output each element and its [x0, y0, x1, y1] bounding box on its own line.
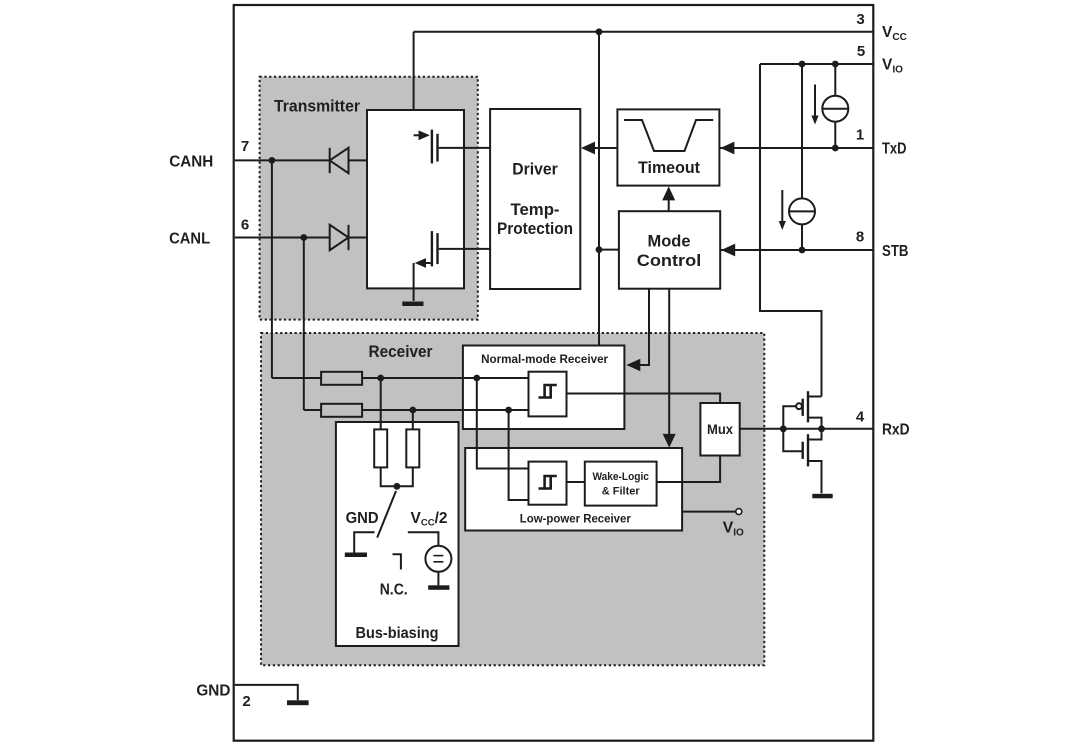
svg-text:N.C.: N.C.: [380, 582, 408, 599]
svg-text:5: 5: [857, 43, 865, 60]
svg-text:7: 7: [241, 138, 249, 155]
svg-text:TxD: TxD: [882, 141, 907, 158]
svg-text:Mux: Mux: [707, 422, 733, 437]
svg-text:Transmitter: Transmitter: [274, 97, 360, 116]
svg-text:Temp-: Temp-: [511, 201, 560, 219]
svg-text:2: 2: [242, 693, 250, 710]
svg-text:STB: STB: [882, 243, 909, 260]
svg-text:8: 8: [856, 229, 864, 246]
svg-text:4: 4: [856, 409, 865, 426]
svg-text:Timeout: Timeout: [638, 159, 700, 177]
svg-text:GND: GND: [196, 682, 230, 699]
svg-text:Receiver: Receiver: [369, 342, 433, 361]
svg-text:6: 6: [241, 217, 249, 234]
svg-text:Mode: Mode: [648, 233, 691, 251]
svg-text:GND: GND: [346, 510, 379, 527]
svg-text:Protection: Protection: [497, 220, 573, 238]
svg-text:1: 1: [856, 127, 864, 144]
svg-text:& Filter: & Filter: [602, 486, 641, 498]
svg-text:CANH: CANH: [169, 153, 213, 170]
svg-text:Bus-biasing: Bus-biasing: [356, 625, 439, 642]
svg-text:Normal-mode Receiver: Normal-mode Receiver: [481, 352, 608, 366]
svg-text:CANL: CANL: [169, 231, 210, 248]
svg-text:Control: Control: [637, 252, 702, 270]
svg-text:RxD: RxD: [882, 422, 910, 439]
svg-text:3: 3: [856, 11, 864, 28]
svg-text:Wake-Logic: Wake-Logic: [592, 471, 649, 483]
svg-text:Driver: Driver: [512, 160, 558, 179]
svg-text:Low-power Receiver: Low-power Receiver: [520, 511, 631, 525]
